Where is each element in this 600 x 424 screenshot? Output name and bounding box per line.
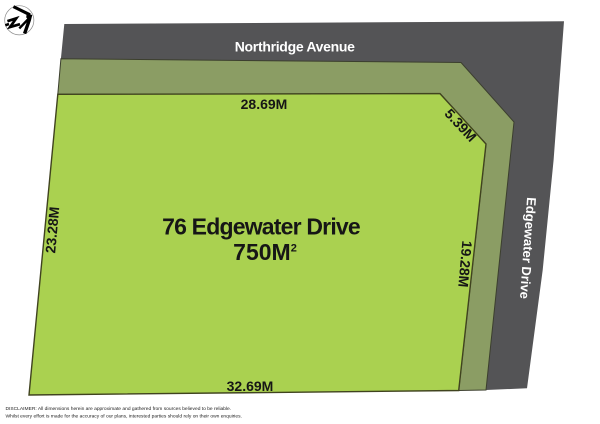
svg-text:Whilst every effort is made fo: Whilst every effort is made for the accu… (6, 414, 242, 420)
svg-text:76 Edgewater Drive: 76 Edgewater Drive (162, 214, 360, 240)
svg-text:28.69M: 28.69M (241, 96, 288, 112)
svg-text:750M2: 750M2 (233, 239, 297, 265)
svg-text:32.69M: 32.69M (227, 378, 274, 394)
svg-text:Northridge Avenue: Northridge Avenue (235, 39, 355, 55)
svg-text:DISCLAIMER: All dimensions he: DISCLAIMER: All dimensions herein are ap… (6, 406, 232, 412)
